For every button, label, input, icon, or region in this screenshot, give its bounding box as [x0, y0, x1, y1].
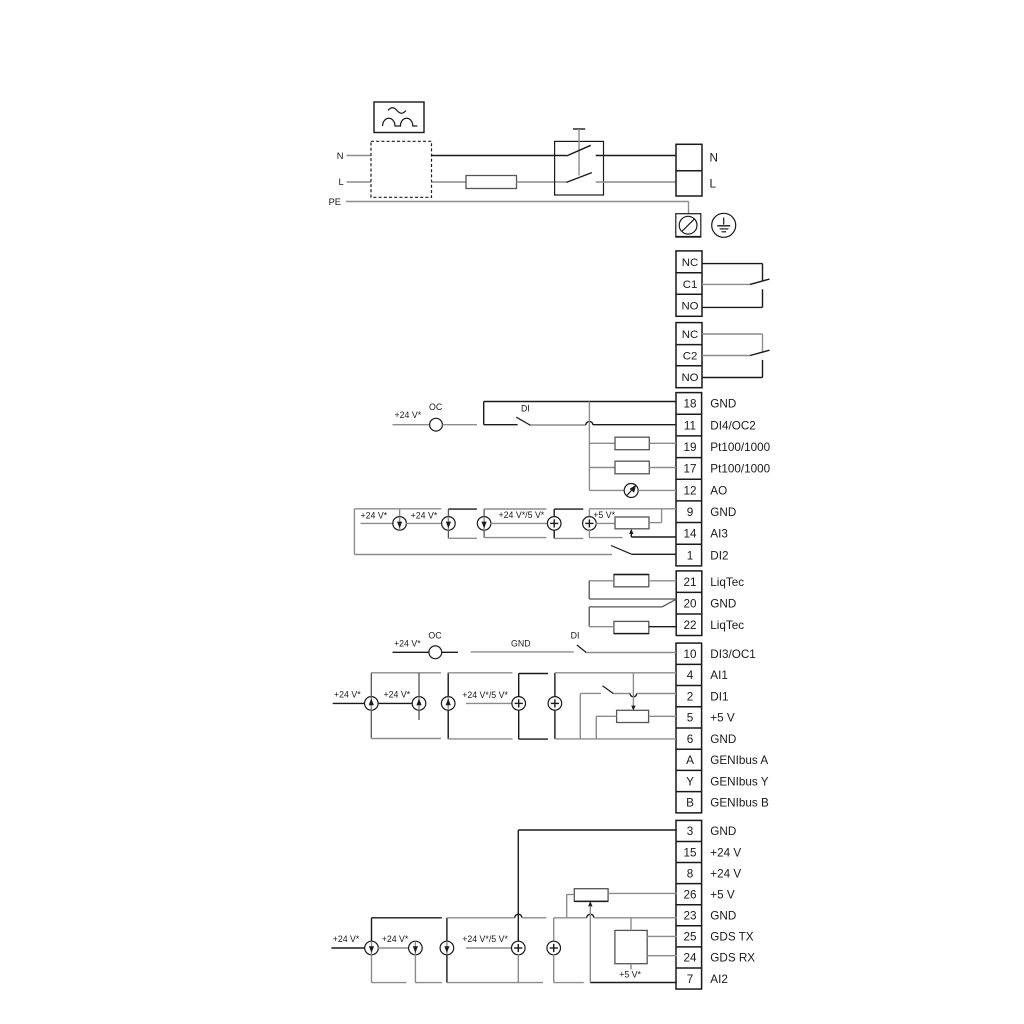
svg-text:+24 V*: +24 V* [384, 690, 411, 700]
svg-text:2: 2 [687, 690, 694, 703]
svg-text:GND: GND [710, 825, 736, 838]
svg-text:20: 20 [683, 598, 697, 611]
svg-text:C1: C1 [683, 279, 698, 291]
svg-text:+5 V*: +5 V* [619, 969, 641, 979]
svg-text:NC: NC [682, 329, 698, 341]
svg-text:GENIbus B: GENIbus B [710, 797, 769, 810]
svg-text:+5 V*: +5 V* [593, 510, 615, 520]
svg-text:A: A [686, 754, 694, 767]
svg-text:GENIbus Y: GENIbus Y [710, 775, 768, 788]
svg-text:9: 9 [687, 506, 694, 519]
svg-text:14: 14 [683, 528, 697, 541]
svg-text:NC: NC [682, 257, 698, 269]
svg-text:+24 V*/5 V*: +24 V*/5 V* [462, 690, 508, 700]
svg-text:17: 17 [683, 463, 696, 476]
svg-text:18: 18 [683, 398, 696, 411]
svg-text:GND: GND [511, 638, 531, 648]
svg-text:+5 V: +5 V [710, 712, 735, 725]
svg-text:GDS RX: GDS RX [710, 952, 755, 965]
svg-text:24: 24 [683, 952, 697, 965]
svg-text:+24 V*/5 V*: +24 V*/5 V* [499, 510, 545, 520]
svg-text:N: N [710, 152, 718, 165]
svg-text:AI2: AI2 [710, 973, 728, 986]
svg-text:AO: AO [710, 484, 727, 497]
svg-text:B: B [686, 797, 694, 810]
svg-text:GND: GND [710, 598, 736, 611]
svg-text:+24 V*: +24 V* [394, 638, 421, 648]
svg-text:GND: GND [710, 398, 736, 411]
svg-text:L: L [710, 178, 717, 191]
svg-text:12: 12 [683, 484, 696, 497]
svg-text:DI4/OC2: DI4/OC2 [710, 419, 755, 432]
svg-text:11: 11 [684, 419, 696, 432]
svg-text:GND: GND [710, 733, 736, 746]
svg-text:GND: GND [710, 910, 736, 923]
svg-text:DI3/OC1: DI3/OC1 [710, 648, 755, 661]
svg-text:L: L [339, 177, 344, 187]
svg-text:DI: DI [571, 631, 580, 641]
svg-text:21: 21 [683, 576, 696, 589]
svg-text:AI1: AI1 [710, 669, 728, 682]
svg-text:Pt100/1000: Pt100/1000 [710, 463, 770, 476]
svg-text:DI1: DI1 [710, 690, 728, 703]
svg-text:Pt100/1000: Pt100/1000 [710, 441, 770, 454]
svg-text:+24 V*: +24 V* [382, 934, 409, 944]
svg-text:LiqTec: LiqTec [710, 576, 744, 589]
svg-text:22: 22 [683, 619, 696, 632]
svg-text:+24 V*: +24 V* [333, 934, 360, 944]
svg-text:+24 V: +24 V [710, 867, 741, 880]
svg-text:25: 25 [683, 931, 697, 944]
svg-text:GND: GND [710, 506, 736, 519]
svg-text:LiqTec: LiqTec [710, 619, 744, 632]
svg-text:19: 19 [683, 441, 696, 454]
svg-text:+24 V*: +24 V* [395, 410, 422, 420]
svg-text:10: 10 [683, 648, 697, 661]
svg-text:DI2: DI2 [710, 549, 728, 562]
svg-text:OC: OC [429, 402, 443, 412]
svg-text:6: 6 [687, 733, 694, 746]
svg-text:GENIbus A: GENIbus A [710, 754, 768, 767]
svg-text:8: 8 [687, 867, 694, 880]
svg-text:NO: NO [681, 372, 698, 384]
svg-text:DI: DI [521, 404, 530, 414]
svg-text:7: 7 [687, 973, 694, 986]
svg-text:15: 15 [683, 846, 697, 859]
svg-text:+24 V: +24 V [710, 846, 741, 859]
svg-text:OC: OC [428, 631, 442, 641]
svg-text:1: 1 [687, 549, 694, 562]
svg-text:AI3: AI3 [710, 528, 728, 541]
svg-text:+5 V: +5 V [710, 888, 735, 901]
svg-text:GDS TX: GDS TX [710, 931, 754, 944]
svg-text:N: N [337, 151, 344, 161]
svg-text:26: 26 [683, 888, 696, 901]
svg-text:C2: C2 [683, 351, 698, 363]
svg-text:23: 23 [683, 910, 696, 923]
svg-text:PE: PE [329, 197, 341, 207]
svg-text:+24 V*/5 V*: +24 V*/5 V* [462, 934, 508, 944]
svg-text:NO: NO [681, 301, 698, 313]
svg-text:3: 3 [687, 825, 694, 838]
svg-text:+24 V*: +24 V* [361, 511, 388, 521]
svg-text:Y: Y [686, 775, 694, 788]
svg-text:+24 V*: +24 V* [411, 511, 438, 521]
svg-text:5: 5 [687, 712, 694, 725]
svg-text:4: 4 [687, 669, 694, 682]
svg-text:+24 V*: +24 V* [334, 690, 361, 700]
